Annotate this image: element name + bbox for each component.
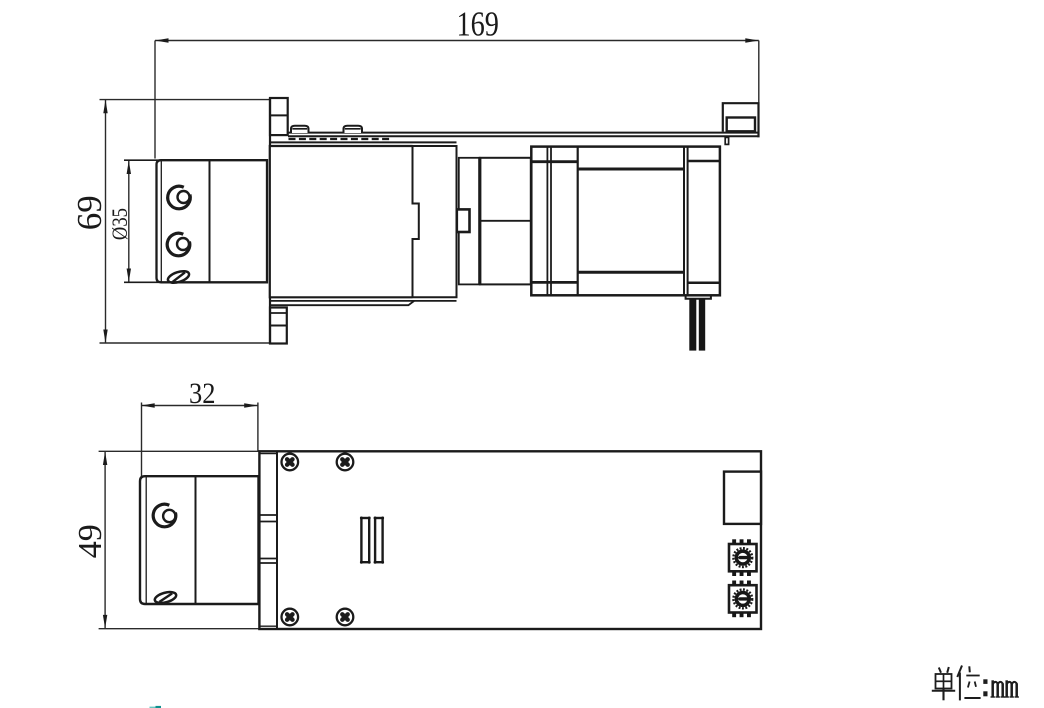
svg-text:69: 69	[70, 195, 109, 230]
svg-text:32: 32	[189, 377, 216, 410]
svg-text:49: 49	[72, 524, 109, 558]
svg-text:Ø35: Ø35	[107, 208, 132, 240]
svg-text:169: 169	[456, 5, 499, 44]
